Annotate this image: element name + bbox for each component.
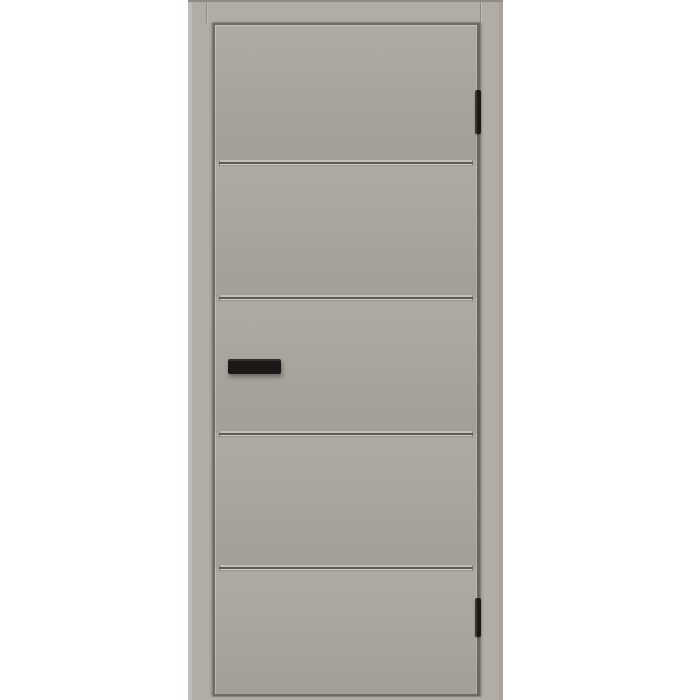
door-handle [228,359,281,374]
frame-header-seam-right [480,2,482,23]
hinge-top [475,90,481,134]
panel-groove-2 [219,295,473,301]
panel-groove-3 [219,431,473,437]
hinge-bottom [475,598,481,637]
door-assembly [188,0,503,700]
door-panel-2 [215,166,477,297]
panel-groove-4 [219,565,473,571]
door-panel-1 [215,25,477,160]
frame-header-seam-left [206,2,208,23]
door-panel-5 [215,573,477,696]
white-background [0,0,700,700]
door-panel-4 [215,439,477,567]
